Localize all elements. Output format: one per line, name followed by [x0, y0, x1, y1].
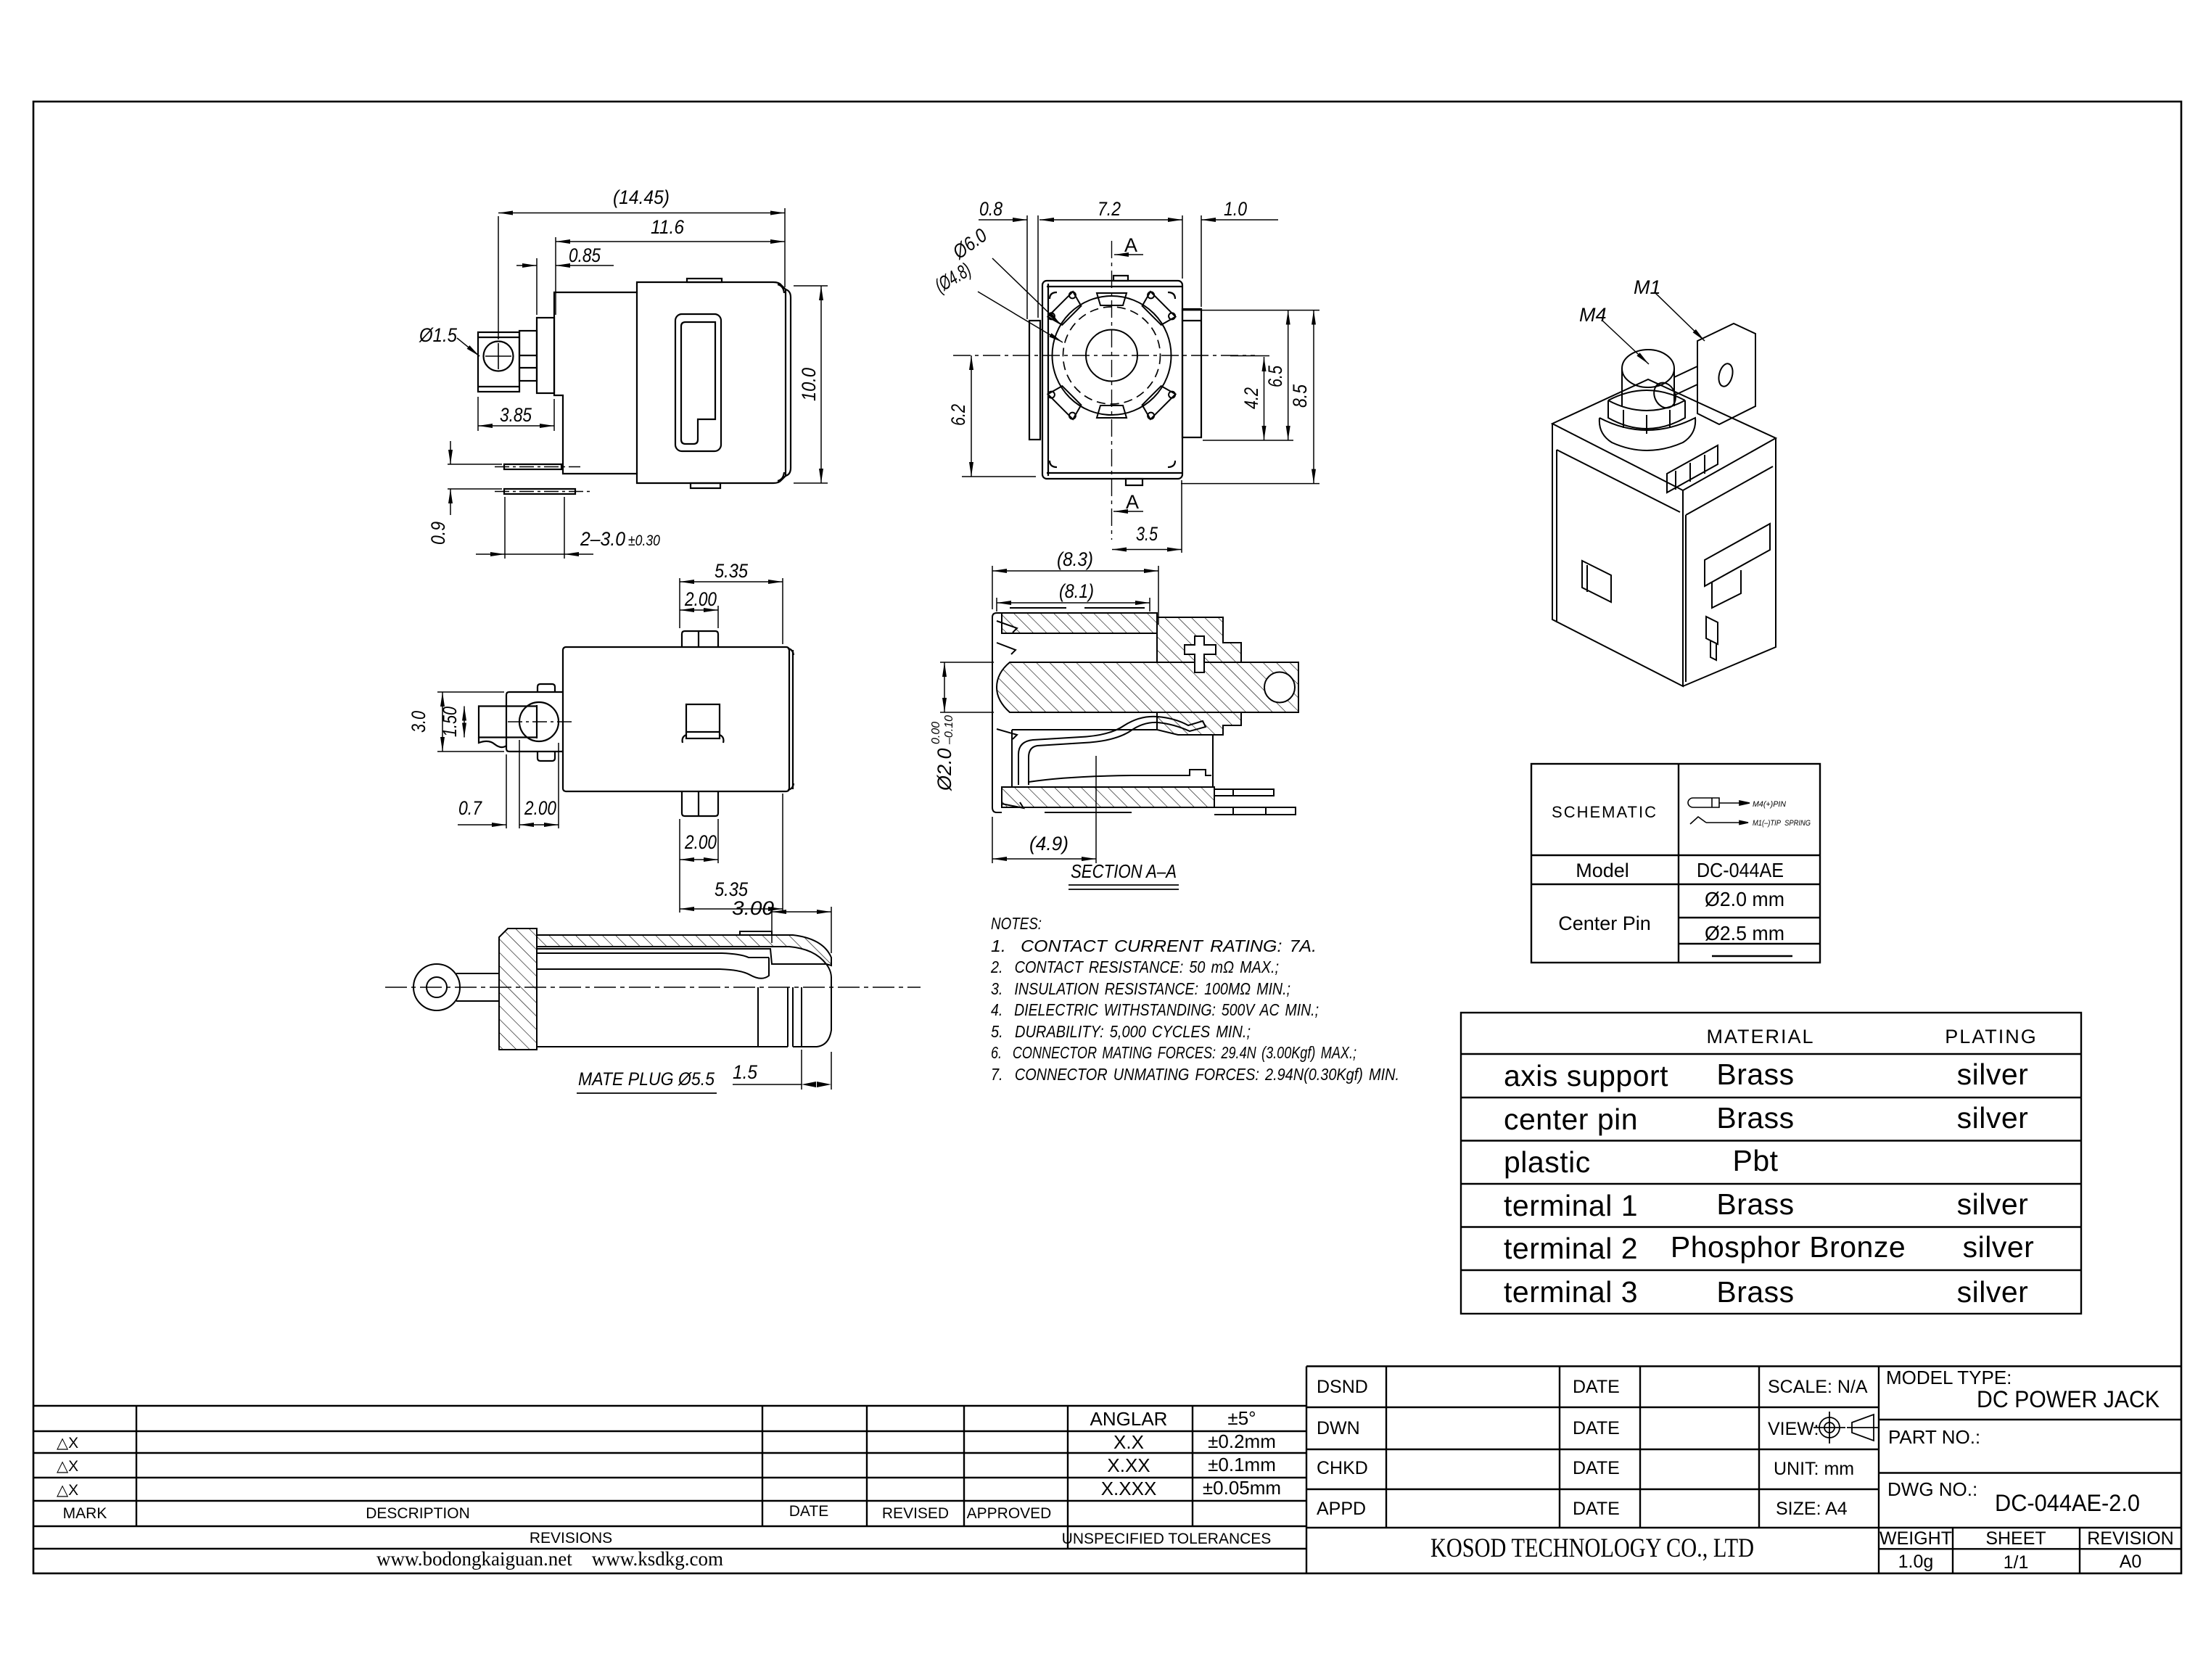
svg-text:0.9: 0.9	[427, 522, 449, 545]
svg-text:Phosphor Bronze: Phosphor Bronze	[1671, 1230, 1906, 1264]
svg-text:DC POWER JACK: DC POWER JACK	[1977, 1386, 2159, 1412]
svg-text:3. INSULATION RESISTANCE: 100: 3. INSULATION RESISTANCE: 100MΩ MIN.;	[991, 979, 1290, 998]
svg-text:PLATING: PLATING	[1945, 1026, 2038, 1047]
svg-text:MATE PLUG Ø5.5: MATE PLUG Ø5.5	[578, 1069, 715, 1090]
svg-text:7. CONNECTOR UNMATING FORCES:: 7. CONNECTOR UNMATING FORCES: 2.94N(0.30…	[991, 1065, 1399, 1084]
svg-text:APPD: APPD	[1317, 1499, 1366, 1519]
svg-text:PART NO.:: PART NO.:	[1888, 1426, 1980, 1448]
svg-text:Ø1.5: Ø1.5	[419, 324, 458, 346]
svg-text:11.6: 11.6	[651, 216, 685, 238]
svg-text:DATE: DATE	[1573, 1458, 1620, 1478]
svg-text:NOTES:: NOTES:	[991, 914, 1042, 933]
svg-text:X.XX: X.XX	[1107, 1454, 1150, 1476]
svg-text:△X: △X	[57, 1458, 78, 1475]
svg-text:6.5: 6.5	[1264, 365, 1286, 387]
svg-text:M1(–)TIP SPRING: M1(–)TIP SPRING	[1753, 819, 1811, 828]
svg-text:5.35: 5.35	[715, 560, 749, 582]
svg-text:A: A	[1126, 491, 1139, 513]
svg-text:A0: A0	[2120, 1552, 2142, 1572]
svg-text:SHEET: SHEET	[1985, 1528, 2046, 1549]
svg-text:Pbt: Pbt	[1732, 1144, 1778, 1177]
svg-text:(8.1): (8.1)	[1059, 580, 1094, 602]
svg-text:terminal 3: terminal 3	[1504, 1275, 1638, 1309]
svg-text:Brass: Brass	[1716, 1058, 1794, 1091]
svg-text:DWG NO.:: DWG NO.:	[1887, 1478, 1977, 1500]
svg-text:2–3.0: 2–3.0	[580, 528, 625, 550]
svg-text:DESCRIPTION: DESCRIPTION	[366, 1505, 470, 1522]
svg-text:Model: Model	[1576, 860, 1629, 881]
svg-text:terminal 2: terminal 2	[1504, 1232, 1638, 1265]
svg-text:3.5: 3.5	[1136, 523, 1158, 545]
svg-text:DATE: DATE	[1573, 1377, 1620, 1397]
svg-text:2.00: 2.00	[524, 797, 556, 819]
svg-text:0.00: 0.00	[930, 722, 942, 744]
svg-text:SCALE: N/A: SCALE: N/A	[1768, 1377, 1868, 1397]
svg-text:www.bodongkaiguan.net www.k: www.bodongkaiguan.net www.ksdkg.com	[376, 1548, 723, 1570]
svg-text:SIZE: A4: SIZE: A4	[1776, 1499, 1848, 1519]
svg-text:M4: M4	[1579, 304, 1607, 326]
svg-text:UNSPECIFIED TOLERANCES: UNSPECIFIED TOLERANCES	[1062, 1531, 1272, 1547]
svg-text:silver: silver	[1957, 1275, 2029, 1309]
svg-text:2.00: 2.00	[684, 588, 717, 610]
svg-text:2.00: 2.00	[684, 831, 717, 853]
svg-text:REVISED: REVISED	[882, 1505, 949, 1522]
svg-text:MARK: MARK	[63, 1505, 107, 1522]
svg-text:(Ø4.8): (Ø4.8)	[931, 259, 975, 297]
svg-text:1/1: 1/1	[2004, 1552, 2029, 1573]
svg-text:4. DIELECTRIC WITHSTANDING: 5: 4. DIELECTRIC WITHSTANDING: 500V AC MIN.…	[991, 1000, 1319, 1019]
svg-text:1.0g: 1.0g	[1898, 1552, 1934, 1572]
svg-text:3.00: 3.00	[732, 897, 774, 919]
svg-text:–0.10: –0.10	[943, 715, 955, 745]
svg-text:Center Pin: Center Pin	[1558, 913, 1651, 934]
svg-text:DSND: DSND	[1317, 1377, 1368, 1397]
svg-text:REVISIONS: REVISIONS	[530, 1530, 612, 1547]
svg-text:SCHEMATIC: SCHEMATIC	[1552, 803, 1658, 821]
svg-text:(8.3): (8.3)	[1057, 548, 1093, 570]
svg-text:3.85: 3.85	[500, 404, 532, 426]
svg-text:KOSOD TECHNOLOGY CO., LTD: KOSOD TECHNOLOGY CO., LTD	[1430, 1533, 1754, 1563]
svg-text:X.X: X.X	[1113, 1431, 1144, 1453]
svg-text:silver: silver	[1957, 1058, 2029, 1091]
svg-text:APPROVED: APPROVED	[967, 1505, 1052, 1522]
svg-text:(4.9): (4.9)	[1029, 833, 1069, 855]
svg-text:6. CONNECTOR MATING FORCES: 2: 6. CONNECTOR MATING FORCES: 29.4N (3.00K…	[991, 1043, 1356, 1062]
svg-text:VIEW:: VIEW:	[1768, 1419, 1819, 1439]
svg-text:axis support: axis support	[1504, 1059, 1668, 1092]
svg-text:Brass: Brass	[1716, 1187, 1794, 1221]
svg-text:±5°: ±5°	[1227, 1407, 1256, 1429]
svg-text:MATERIAL: MATERIAL	[1706, 1026, 1814, 1047]
svg-text:Ø2.0: Ø2.0	[934, 748, 955, 791]
svg-text:±0.30: ±0.30	[628, 532, 660, 549]
svg-text:plastic: plastic	[1504, 1145, 1591, 1179]
svg-text:Brass: Brass	[1716, 1275, 1794, 1309]
svg-text:silver: silver	[1957, 1101, 2029, 1135]
svg-text:3.0: 3.0	[408, 711, 429, 733]
svg-text:M1: M1	[1634, 276, 1661, 298]
svg-text:Ø2.5 mm: Ø2.5 mm	[1705, 922, 1784, 944]
svg-text:8.5: 8.5	[1289, 384, 1311, 408]
svg-text:center pin: center pin	[1504, 1103, 1638, 1136]
svg-text:DATE: DATE	[1573, 1499, 1620, 1519]
svg-text:±0.1mm: ±0.1mm	[1208, 1454, 1276, 1475]
svg-text:5. DURABILITY: 5,000 CYCLES M: 5. DURABILITY: 5,000 CYCLES MIN.;	[991, 1022, 1251, 1041]
svg-text:10.0: 10.0	[798, 368, 820, 401]
svg-text:X.XXX: X.XXX	[1101, 1478, 1157, 1499]
svg-text:Ø6.0: Ø6.0	[948, 224, 991, 263]
svg-text:1. CONTACT CURRENT RATING: 7A: 1. CONTACT CURRENT RATING: 7A.	[991, 936, 1317, 955]
svg-text:REVISION: REVISION	[2087, 1528, 2173, 1549]
svg-text:±0.2mm: ±0.2mm	[1208, 1430, 1276, 1452]
svg-text:DATE: DATE	[789, 1503, 828, 1520]
svg-text:△X: △X	[57, 1482, 78, 1499]
svg-text:DWN: DWN	[1317, 1418, 1360, 1438]
svg-text:silver: silver	[1957, 1187, 2029, 1221]
svg-text:△X: △X	[57, 1435, 78, 1452]
svg-text:6.2: 6.2	[947, 404, 969, 426]
svg-text:Ø2.0 mm: Ø2.0 mm	[1705, 888, 1784, 910]
svg-text:M4(+)PIN: M4(+)PIN	[1753, 800, 1786, 809]
svg-text:0.7: 0.7	[458, 797, 482, 819]
svg-text:1.0: 1.0	[1224, 198, 1247, 220]
svg-text:UNIT: mm: UNIT: mm	[1774, 1459, 1854, 1479]
svg-text:0.8: 0.8	[979, 198, 1002, 220]
svg-text:DATE: DATE	[1573, 1418, 1620, 1438]
svg-text:MODEL TYPE:: MODEL TYPE:	[1886, 1367, 2012, 1388]
svg-text:(14.45): (14.45)	[613, 186, 670, 208]
svg-text:silver: silver	[1963, 1230, 2035, 1264]
svg-text:Brass: Brass	[1716, 1101, 1794, 1135]
svg-text:±0.05mm: ±0.05mm	[1203, 1477, 1281, 1499]
svg-text:A: A	[1124, 234, 1137, 256]
svg-text:DC-044AE-2.0: DC-044AE-2.0	[1995, 1490, 2140, 1516]
svg-text:0.85: 0.85	[569, 244, 601, 266]
svg-text:DC-044AE: DC-044AE	[1697, 859, 1784, 881]
svg-text:ANGLAR: ANGLAR	[1090, 1408, 1168, 1430]
svg-text:WEIGHT: WEIGHT	[1879, 1528, 1952, 1549]
svg-text:2. CONTACT RESISTANCE: 50 mΩ: 2. CONTACT RESISTANCE: 50 mΩ MAX.;	[990, 958, 1279, 976]
svg-text:1.50: 1.50	[439, 707, 461, 737]
svg-text:1.5: 1.5	[733, 1061, 758, 1083]
svg-text:4.2: 4.2	[1240, 387, 1262, 409]
svg-text:7.2: 7.2	[1098, 198, 1121, 220]
svg-text:CHKD: CHKD	[1317, 1458, 1368, 1478]
svg-text:SECTION A–A: SECTION A–A	[1071, 860, 1177, 882]
svg-text:terminal 1: terminal 1	[1504, 1189, 1638, 1222]
